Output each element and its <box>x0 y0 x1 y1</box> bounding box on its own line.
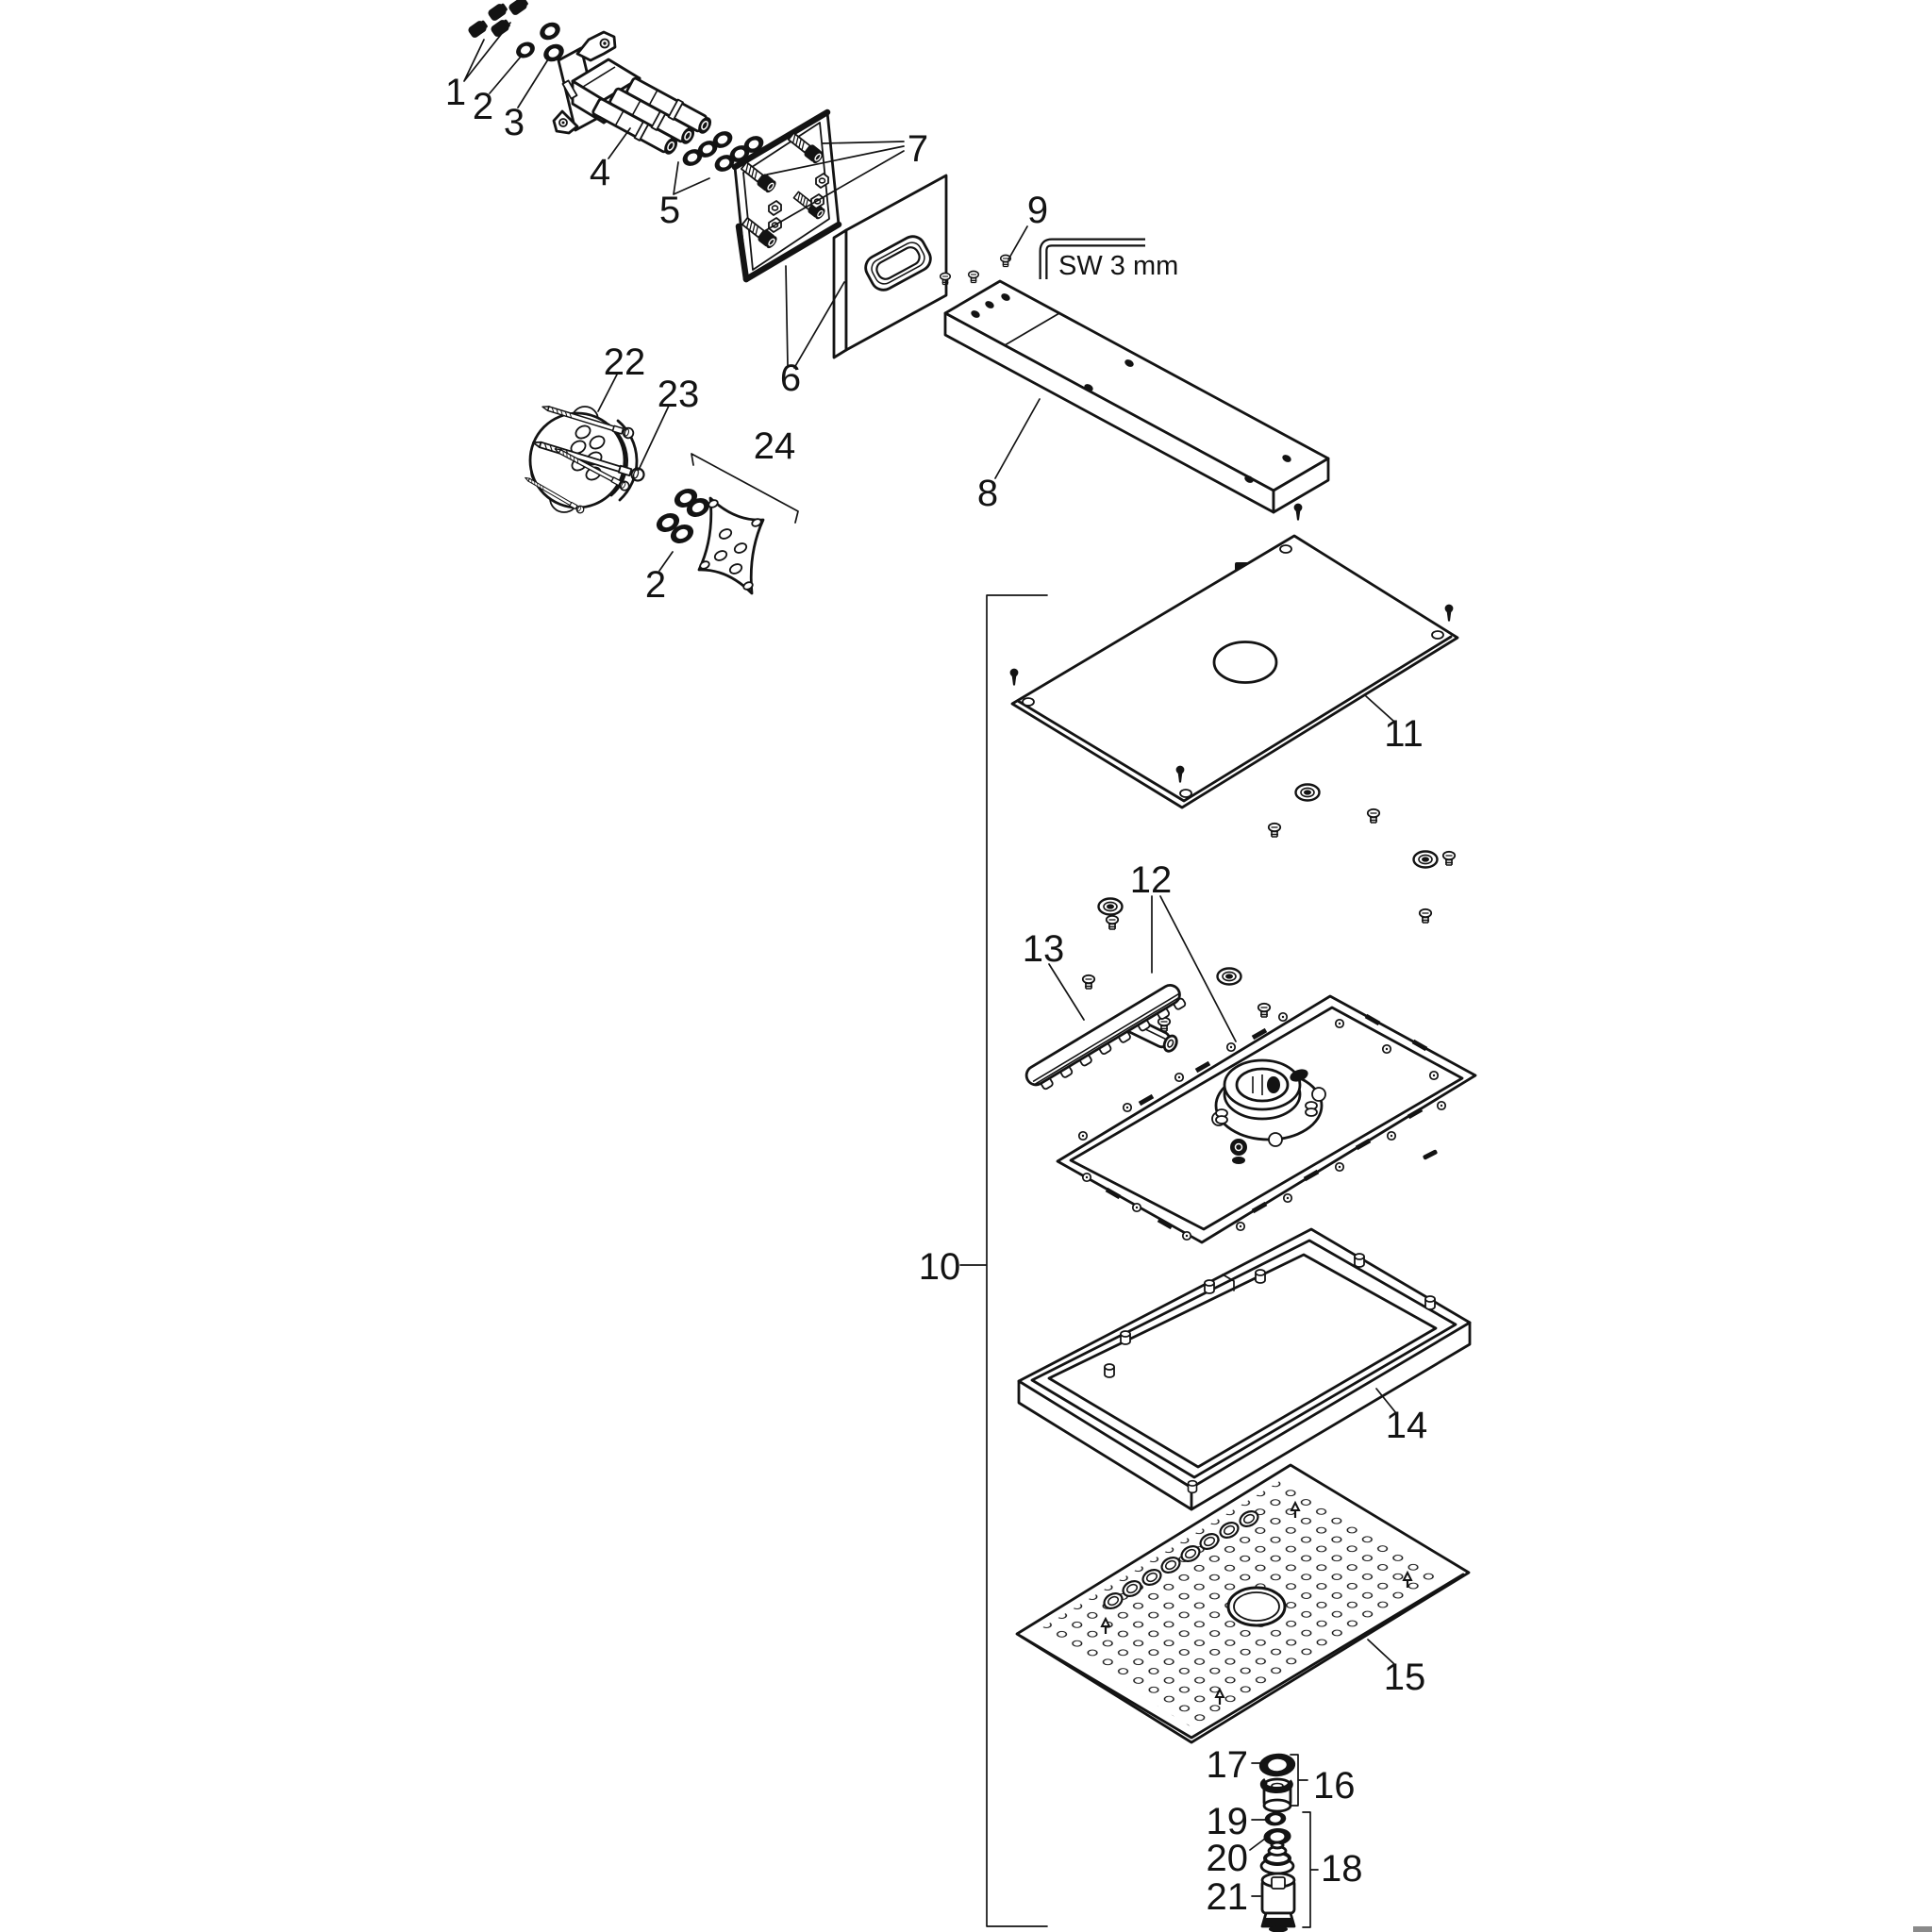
part-6-seal-frame <box>735 112 839 279</box>
callout-19: 19 <box>1207 1801 1249 1842</box>
part-14-housing-tray <box>1019 1229 1470 1509</box>
callout-6: 6 <box>780 358 801 399</box>
part-11-cover-plate <box>1012 536 1457 808</box>
callout-23: 23 <box>658 374 700 415</box>
callout-11: 11 <box>1384 713 1424 755</box>
corner-artifact <box>1913 1926 1932 1932</box>
callout-10: 10 <box>919 1246 961 1288</box>
part-15-spray-plate <box>1017 1465 1469 1742</box>
callout-2: 2 <box>473 86 493 127</box>
part-1-plugs <box>467 0 530 39</box>
callout-4: 4 <box>590 152 610 193</box>
callout-24: 24 <box>754 425 796 467</box>
callout-8: 8 <box>977 473 998 514</box>
callout-21: 21 <box>1207 1876 1249 1918</box>
diagram-canvas: SW 3 mm <box>0 0 1932 1932</box>
callout-9: 9 <box>1027 190 1048 231</box>
callout-3: 3 <box>504 102 525 143</box>
part-2-orings-lower <box>657 489 708 544</box>
callout-5: 5 <box>659 190 680 231</box>
part-3-orings <box>540 22 563 61</box>
part-24-gasket <box>699 498 763 593</box>
part-6-escutcheon-plate <box>834 175 946 358</box>
callout-20: 20 <box>1207 1838 1249 1879</box>
sw-3mm-label: SW 3 mm <box>1058 251 1178 281</box>
callout-12: 12 <box>1130 859 1173 901</box>
callout-13: 13 <box>1023 928 1065 970</box>
part-2-orings <box>516 42 534 58</box>
callout-22: 22 <box>604 341 646 383</box>
callout-2-duplicate: 2 <box>645 564 666 606</box>
part-16-connector <box>1263 1779 1291 1811</box>
part-8-wall-arm <box>945 281 1328 512</box>
part-20-cone-seal <box>1261 1842 1293 1874</box>
part-4-basic-body <box>554 32 714 158</box>
callout-15: 15 <box>1384 1657 1426 1698</box>
callout-16: 16 <box>1313 1765 1356 1807</box>
exploded-diagram: SW 3 mm <box>0 0 1932 1932</box>
part-13-spray-bar <box>1023 982 1187 1095</box>
callout-14: 14 <box>1386 1405 1428 1446</box>
callout-17: 17 <box>1207 1744 1249 1786</box>
part-19-oring <box>1267 1813 1284 1824</box>
part-21-nozzle <box>1262 1874 1294 1932</box>
callout-18: 18 <box>1321 1848 1363 1890</box>
callout-7: 7 <box>908 128 928 170</box>
part-17-oring <box>1263 1756 1291 1774</box>
callout-1: 1 <box>445 72 466 113</box>
